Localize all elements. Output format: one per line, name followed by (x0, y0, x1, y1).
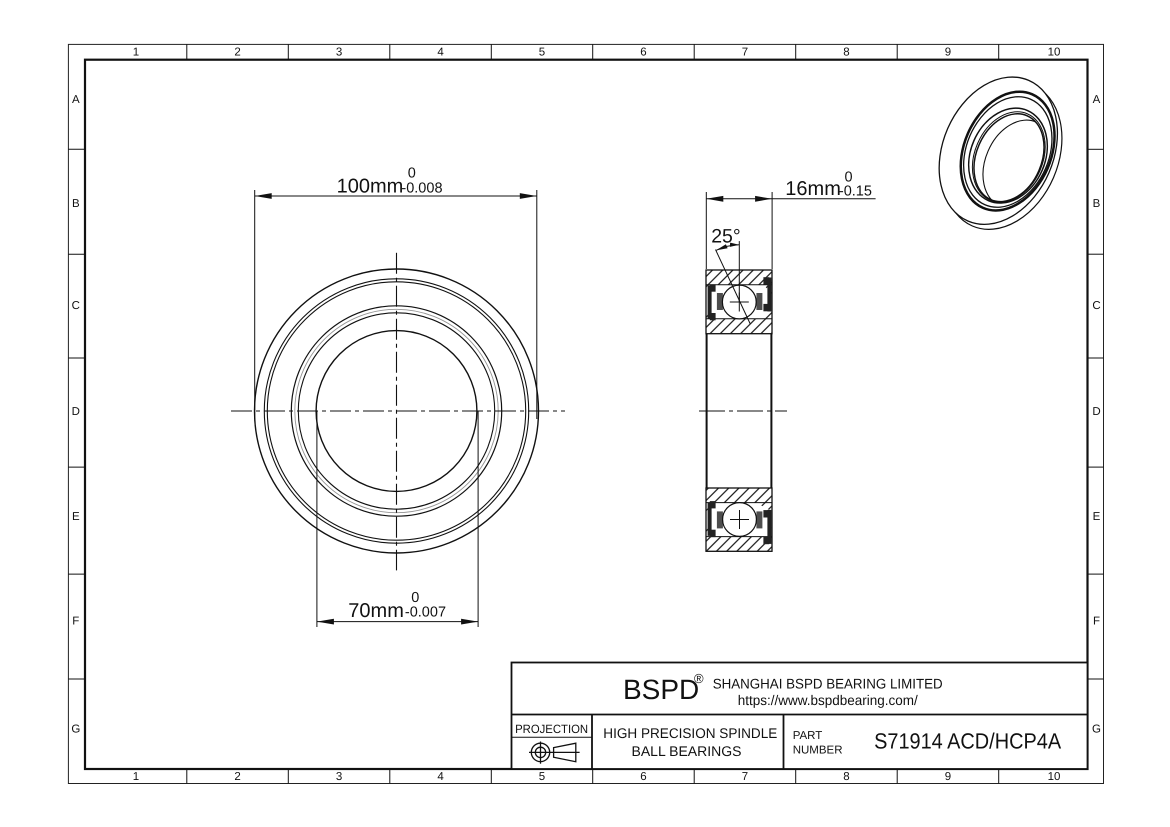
svg-text:D: D (1092, 406, 1100, 418)
svg-text:10: 10 (1048, 771, 1061, 783)
svg-text:https://www.bspdbearing.com/: https://www.bspdbearing.com/ (738, 692, 918, 708)
svg-text:4: 4 (437, 47, 444, 59)
svg-text:3: 3 (336, 47, 342, 59)
svg-text:C: C (1092, 300, 1100, 312)
svg-text:10: 10 (1048, 47, 1061, 59)
svg-text:9: 9 (945, 771, 951, 783)
svg-text:G: G (71, 724, 80, 736)
svg-text:5: 5 (539, 47, 545, 59)
svg-text:PROJECTION: PROJECTION (515, 722, 588, 736)
svg-text:0: 0 (408, 166, 416, 182)
svg-text:B: B (1093, 198, 1101, 210)
svg-text:7: 7 (742, 47, 748, 59)
svg-text:0: 0 (411, 590, 419, 606)
svg-text:F: F (72, 616, 79, 628)
svg-text:-0.15: -0.15 (839, 184, 872, 200)
svg-text:BALL BEARINGS: BALL BEARINGS (632, 743, 742, 759)
svg-text:PART: PART (793, 730, 823, 742)
svg-text:E: E (72, 511, 80, 523)
svg-text:-0.008: -0.008 (401, 180, 442, 196)
svg-text:9: 9 (945, 47, 951, 59)
svg-text:16mm: 16mm (785, 178, 841, 200)
svg-text:4: 4 (437, 771, 444, 783)
svg-text:A: A (1093, 94, 1101, 106)
svg-text:6: 6 (640, 47, 646, 59)
svg-text:E: E (1093, 511, 1101, 523)
svg-text:2: 2 (234, 47, 240, 59)
svg-text:A: A (72, 94, 80, 106)
svg-text:8: 8 (843, 771, 849, 783)
svg-text:7: 7 (742, 771, 748, 783)
svg-text:BSPD: BSPD (623, 674, 699, 705)
svg-text:-0.007: -0.007 (405, 605, 446, 621)
svg-text:G: G (1092, 724, 1101, 736)
svg-text:F: F (1093, 616, 1100, 628)
svg-text:HIGH PRECISION SPINDLE: HIGH PRECISION SPINDLE (603, 725, 777, 741)
svg-text:NUMBER: NUMBER (793, 745, 843, 757)
svg-text:®: ® (694, 671, 704, 686)
svg-text:S71914 ACD/HCP4A: S71914 ACD/HCP4A (874, 728, 1061, 753)
svg-text:70mm: 70mm (348, 600, 404, 622)
svg-text:6: 6 (640, 771, 646, 783)
svg-text:5: 5 (539, 771, 545, 783)
svg-text:1: 1 (133, 771, 139, 783)
svg-text:3: 3 (336, 771, 342, 783)
svg-text:8: 8 (843, 47, 849, 59)
svg-text:C: C (72, 300, 80, 312)
svg-text:0: 0 (845, 170, 853, 186)
svg-text:1: 1 (133, 47, 139, 59)
svg-text:2: 2 (234, 771, 240, 783)
svg-text:B: B (72, 198, 80, 210)
svg-text:D: D (72, 406, 80, 418)
svg-text:100mm: 100mm (337, 176, 404, 198)
svg-text:SHANGHAI BSPD BEARING LIMITED: SHANGHAI BSPD BEARING LIMITED (713, 675, 943, 691)
